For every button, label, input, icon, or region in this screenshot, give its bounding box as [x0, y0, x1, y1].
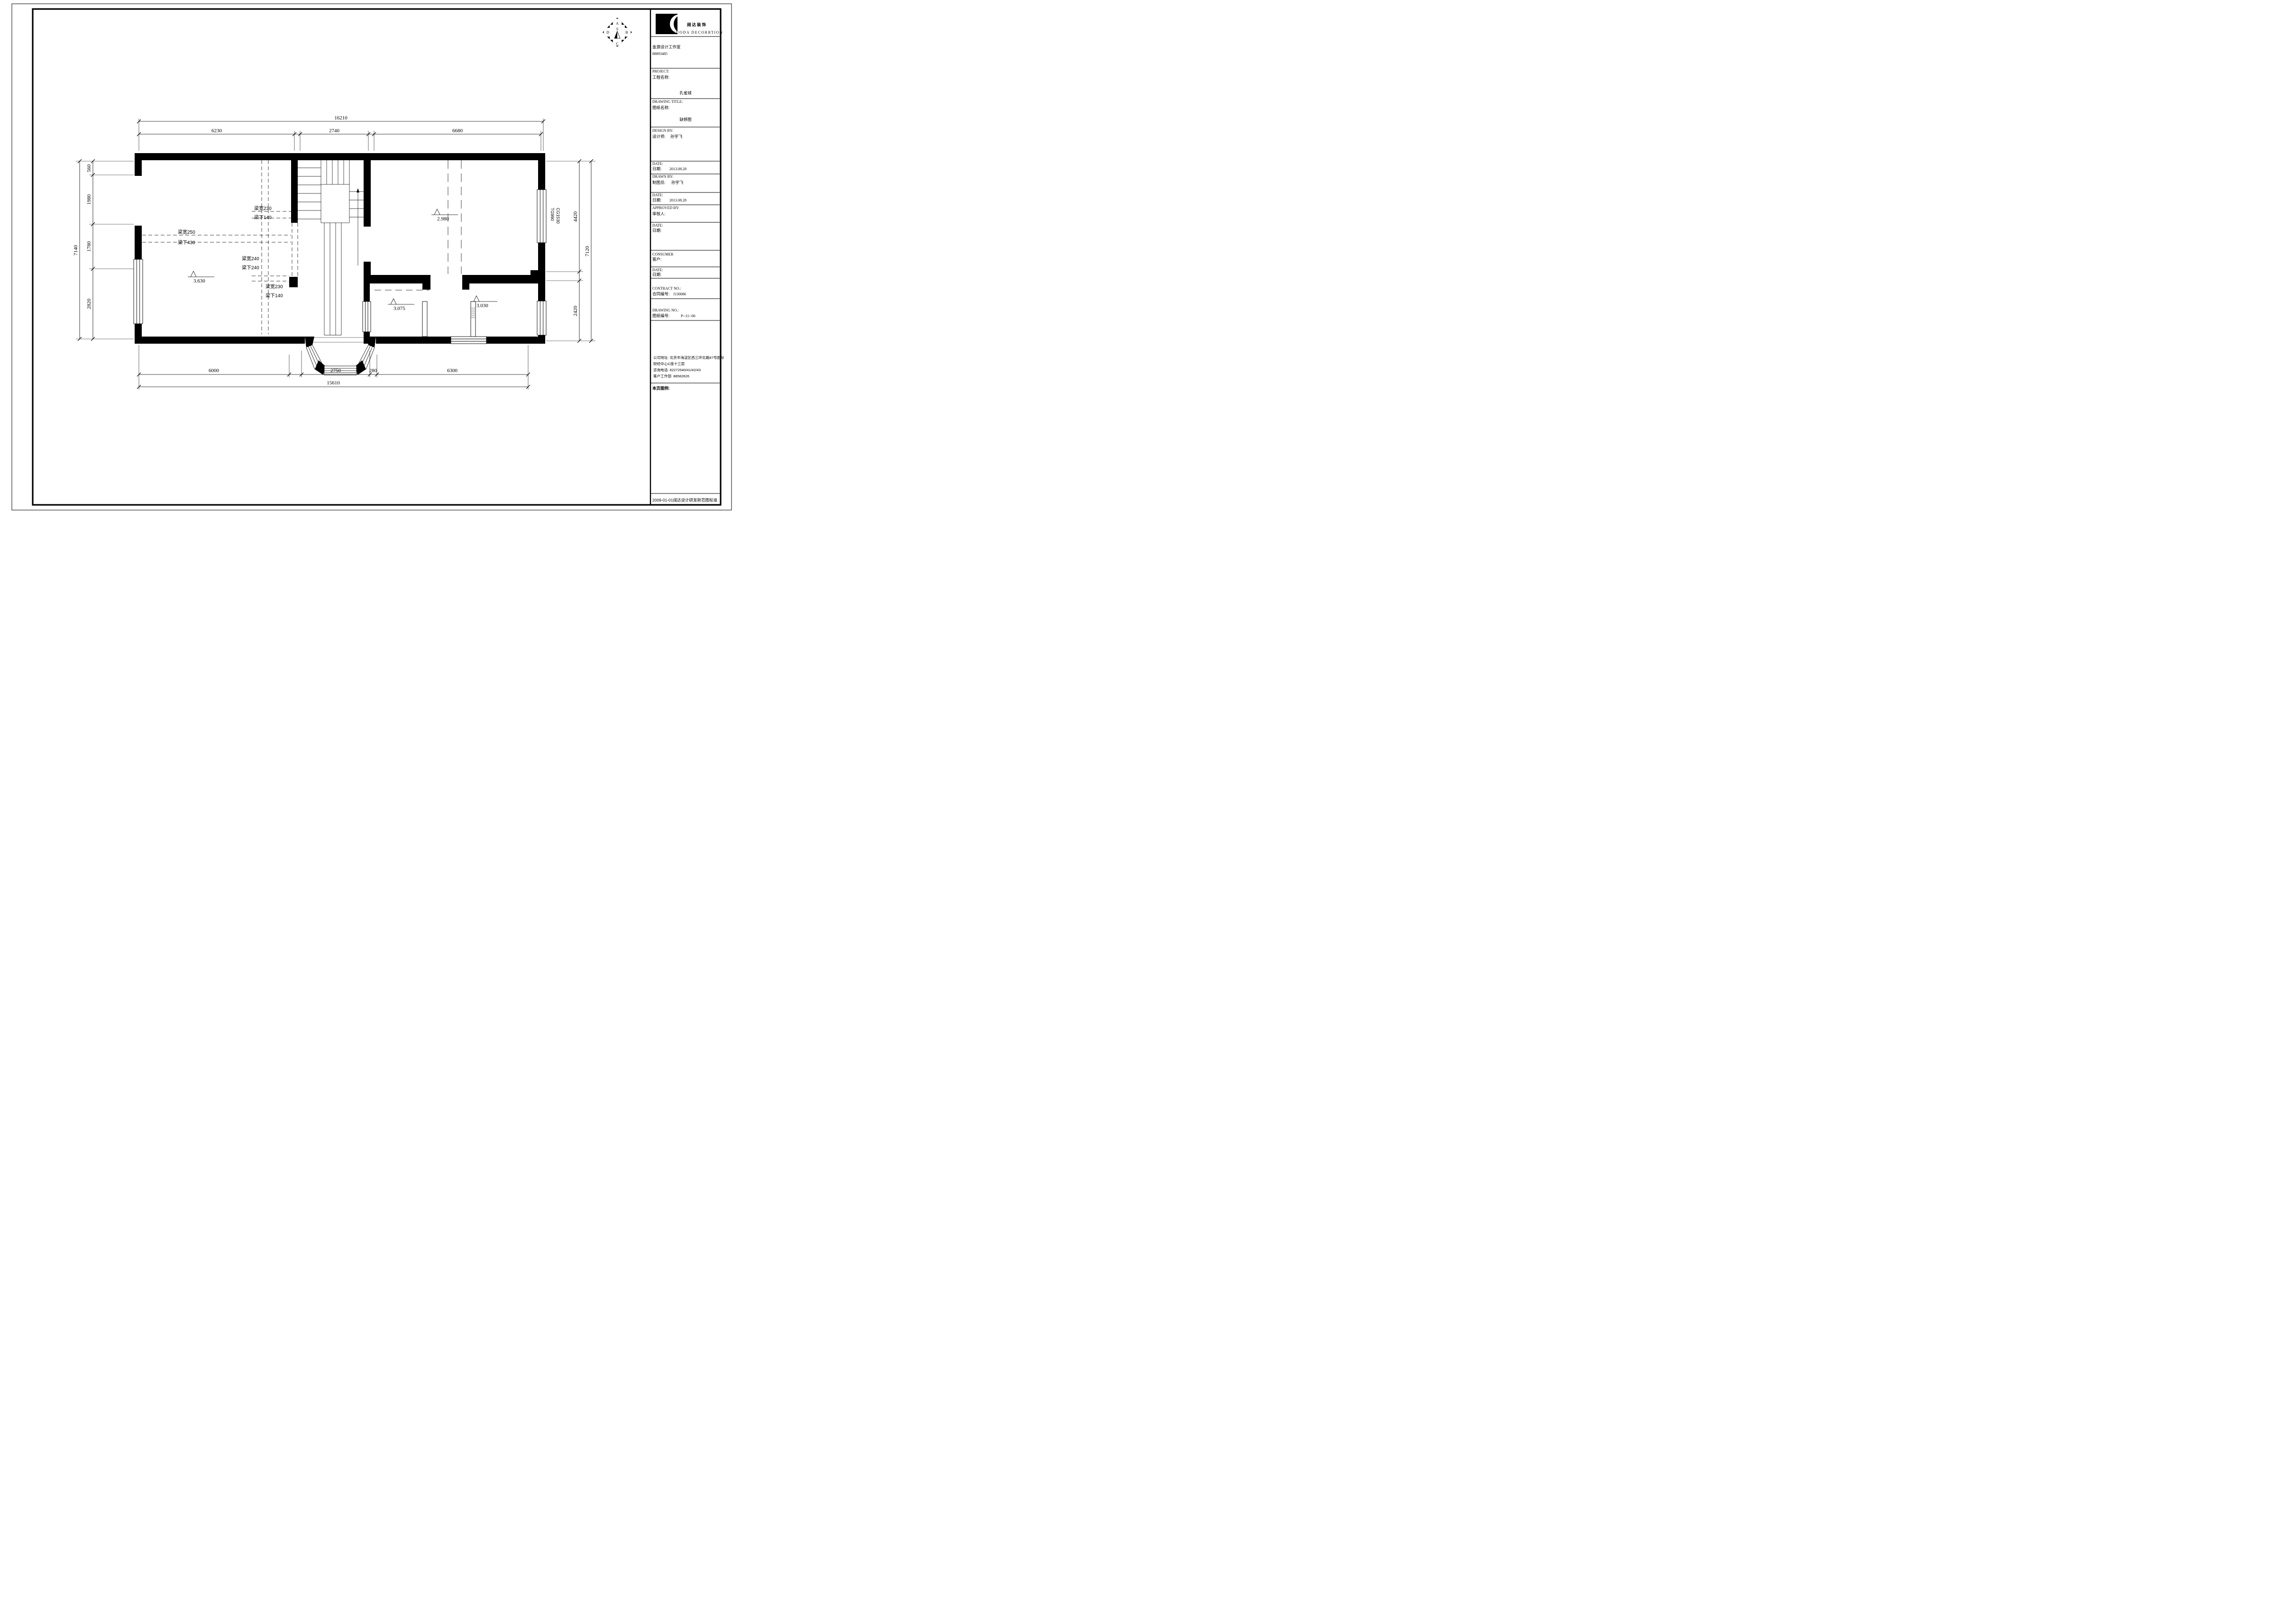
window-bottom-wall: [451, 337, 486, 344]
logo-company-en: KUODA DECORRTION: [672, 30, 723, 35]
logo-studio: 金源设计工作室: [652, 45, 681, 49]
sheet-svg: 阔达装饰 KUODA DECORRTION 金源设计工作室 88893485 P…: [0, 0, 734, 514]
contract-label-en: CONTRACT NO.:: [652, 286, 681, 291]
stair-landing: [321, 184, 349, 223]
approved-by-label-cn: 审核人:: [652, 211, 666, 216]
window-left-wall: [134, 259, 143, 324]
beam-note-2-w: 梁宽240: [242, 256, 259, 262]
footer-note: 2009-01-01阔达设计研发新范图标准: [652, 498, 717, 502]
address-line1: 公司地址: 北京市海淀区西三环北路87号国际: [653, 355, 724, 360]
beam-note-2-u: 梁下240: [242, 265, 259, 271]
partition-2: [471, 301, 476, 337]
beam-note-3-w: 梁宽230: [265, 283, 283, 290]
dim-left-seg-0: 560: [86, 164, 92, 172]
dim-top-overall: 16210: [334, 115, 348, 121]
dim-top-seg-2: 6680: [452, 128, 463, 134]
window-right-wall-lower: [537, 301, 546, 335]
date2-label-en: DATE:: [652, 193, 663, 197]
date3-label-cn: 日期:: [652, 228, 661, 233]
date1-value: 2013.08.28: [669, 167, 686, 171]
window-interior-wall: [363, 301, 371, 332]
drawing-no-label-cn: 图纸编号:: [652, 313, 669, 318]
date1-label-en: DATE:: [652, 162, 663, 166]
beam-note-1-u: 梁下430: [178, 239, 195, 246]
beam-note-0-u: 梁下140: [254, 214, 272, 220]
legend-label: 本页图例:: [652, 386, 670, 391]
consumer-label-en: CONSUMER: [652, 252, 674, 256]
window-tag-cg1530: CG1530: [556, 208, 560, 224]
contract-no: J130086: [673, 292, 686, 296]
elevation-3075-value: 3.075: [393, 306, 405, 311]
north-letter-a: A: [616, 21, 619, 26]
logo-studio-phone: 88893485: [652, 52, 668, 56]
date4-label-cn: 日期:: [652, 272, 661, 277]
date4-label-en: DATE:: [652, 268, 663, 272]
dim-right-seg-0: 4420: [573, 211, 578, 222]
drawing-title-label-cn: 图纸名称:: [652, 105, 669, 110]
drawn-by-label-cn: 制图员:: [652, 180, 666, 185]
date2-value: 2013.08.28: [669, 198, 686, 202]
designer-name: 孙宇飞: [670, 134, 683, 139]
dim-right-seg-1: 2420: [573, 306, 578, 317]
window-tag-tg990: TG990: [550, 208, 555, 221]
address-line4: 客户工作部: 88582626: [653, 374, 689, 378]
contract-label-cn: 合同编号:: [652, 292, 669, 296]
project-label-en: PROJECT:: [652, 69, 669, 73]
address-line3: 咨询电话: 82272540/41/42/43: [653, 367, 701, 372]
logo-company-cn: 阔达装饰: [687, 22, 707, 27]
sheet-background: [0, 0, 734, 514]
drawing-title: 缺憾图: [679, 117, 692, 122]
dim-left-seg-3: 2820: [86, 299, 92, 310]
drawing-no-label-en: DRAWING NO.:: [652, 308, 679, 312]
elevation-3030-value: 3.030: [476, 303, 488, 309]
beam-note-3-u: 梁下140: [265, 292, 283, 299]
dim-bottom-seg-0: 6000: [209, 368, 220, 374]
project-label-cn: 工程名称:: [652, 75, 669, 80]
window-right-wall-upper: [537, 190, 546, 243]
drawing-sheet: 阔达装饰 KUODA DECORRTION 金源设计工作室 88893485 P…: [0, 0, 734, 514]
design-by-label-cn: 设计师:: [652, 134, 666, 139]
drawn-by-label-en: DRAWN BY:: [652, 174, 673, 179]
drawing-no: P--11--06: [681, 314, 695, 318]
date3-label-en: DATE:: [652, 223, 663, 228]
design-by-label-en: DESIGN BY:: [652, 128, 673, 133]
project-name: 孔雀城: [679, 91, 692, 95]
dim-bottom-overall: 15610: [327, 380, 340, 386]
dim-right-overall: 7120: [585, 246, 590, 257]
north-letter-c: C: [616, 42, 618, 46]
partition-1: [422, 301, 427, 337]
north-letter-b: B: [625, 30, 628, 35]
elevation-2980-value: 2.980: [437, 216, 449, 222]
consumer-label-cn: 客户:: [652, 257, 661, 262]
address-line2: 财经中心C座十三层: [653, 361, 685, 366]
dim-left-seg-2: 1780: [86, 241, 92, 252]
drafter-name: 孙宇飞: [671, 180, 684, 185]
dim-left-seg-1: 1980: [86, 194, 92, 205]
approved-by-label-en: APPROVED BY:: [652, 206, 679, 210]
date1-label-cn: 日期:: [652, 166, 661, 171]
north-letter-d: D: [606, 30, 609, 35]
dim-left-overall: 7140: [73, 245, 79, 256]
dim-top-seg-0: 6230: [211, 128, 222, 134]
drawing-title-label-en: DRAWING TITLE:: [652, 100, 683, 104]
north-letter-s: S: [616, 27, 618, 31]
date2-label-cn: 日期:: [652, 198, 661, 202]
dim-bottom-seg-2: 280: [369, 368, 377, 374]
beam-note-1-w: 梁宽250: [178, 229, 195, 235]
beam-note-0-w: 梁宽230: [254, 205, 272, 211]
dim-top-seg-1: 2740: [329, 128, 340, 134]
dim-bottom-seg-1: 2750: [330, 368, 341, 374]
dim-bottom-seg-3: 6300: [447, 368, 458, 374]
elevation-3630-value: 3.630: [193, 278, 205, 284]
